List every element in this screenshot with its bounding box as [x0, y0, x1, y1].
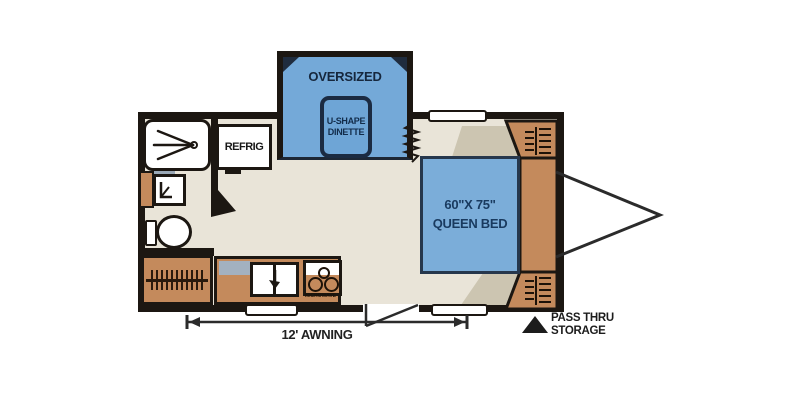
dimension-arrow-icon	[189, 317, 200, 327]
faucet-icon	[253, 265, 296, 294]
refrig-label: REFRIG	[225, 141, 264, 153]
pass-thru-line2: STORAGE	[551, 325, 614, 338]
wardrobe	[141, 255, 213, 305]
stove-burners-icon	[303, 260, 342, 296]
queen-bed: 60"X 75" QUEEN BED	[420, 156, 520, 274]
vanity-sink-icon	[156, 177, 183, 203]
shower-stall	[143, 119, 211, 171]
awning-label: 12' AWNING	[237, 327, 397, 342]
bed-size-label: 60"X 75"	[444, 196, 495, 215]
vanity-cabinet	[139, 171, 154, 208]
hitch-tongue-icon	[556, 172, 660, 257]
kitchen-counter: MICROWAVE	[214, 256, 341, 305]
oversized-label: OVERSIZED	[283, 69, 407, 84]
shower-head-icon	[146, 122, 208, 168]
refrigerator: REFRIG	[216, 124, 272, 170]
hanger-rod	[146, 279, 208, 282]
dinette-label-line1: U-SHAPE	[327, 116, 365, 127]
double-sink-icon	[250, 262, 299, 297]
counter-backsplash	[219, 261, 250, 275]
entry-door-opening	[363, 304, 419, 314]
microwave-label: MICROWAVE	[301, 293, 340, 299]
window	[428, 110, 487, 122]
window	[245, 304, 298, 316]
toilet-icon	[156, 215, 192, 249]
vanity-sink	[153, 174, 186, 206]
pass-thru-storage-label: PASS THRU STORAGE	[551, 312, 614, 337]
bed-name-label: QUEEN BED	[433, 215, 508, 234]
u-shape-dinette-table: U-SHAPE DINETTE	[320, 96, 372, 158]
window	[431, 304, 488, 316]
dinette-label-line2: DINETTE	[328, 127, 364, 138]
triangle-marker-icon	[522, 316, 548, 333]
pass-thru-line1: PASS THRU	[551, 312, 614, 325]
floorplan-canvas: REFRIG MICROWAVE 60"X	[0, 0, 800, 400]
dimension-arrow-icon	[454, 317, 465, 327]
burner-icon	[308, 277, 323, 292]
burner-icon	[324, 277, 339, 292]
